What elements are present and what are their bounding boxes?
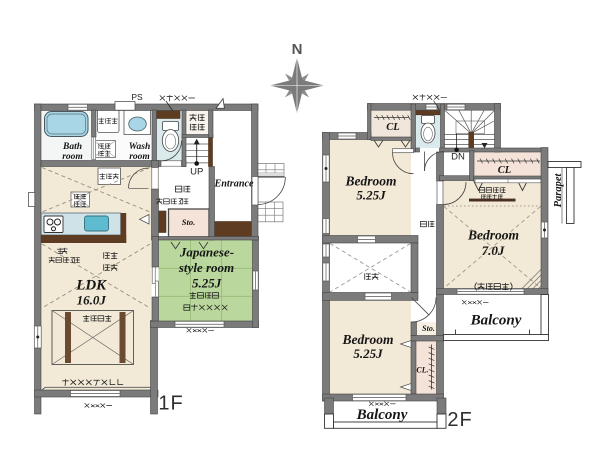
svg-text:style room: style room (178, 260, 234, 275)
svg-text:2F: 2F (447, 409, 472, 431)
svg-text:CL: CL (386, 122, 399, 133)
svg-text:Wash: Wash (129, 142, 150, 152)
svg-text:room: room (129, 152, 150, 162)
svg-text:Entrance: Entrance (213, 178, 254, 189)
svg-text:DN: DN (451, 152, 465, 163)
svg-text:Sto.: Sto. (182, 217, 195, 227)
svg-text:Bath: Bath (62, 142, 82, 152)
svg-text:5.25J: 5.25J (353, 346, 383, 361)
svg-text:CL: CL (498, 165, 511, 176)
svg-text:Parapet: Parapet (553, 173, 564, 208)
svg-text:1F: 1F (158, 392, 183, 414)
svg-text:CL.: CL. (416, 365, 428, 374)
svg-text:Bedroom: Bedroom (467, 227, 519, 242)
svg-text:16.0J: 16.0J (77, 292, 107, 307)
svg-text:LDK: LDK (75, 277, 107, 293)
svg-text:5.25J: 5.25J (356, 187, 386, 202)
svg-text:N: N (292, 41, 303, 58)
svg-text:Bedroom: Bedroom (344, 173, 396, 188)
svg-text:UP: UP (190, 166, 203, 177)
svg-text:Sto.: Sto. (422, 324, 435, 333)
svg-text:Balcony: Balcony (356, 407, 408, 423)
svg-text:room: room (62, 152, 83, 162)
svg-text:5.25J: 5.25J (192, 275, 222, 290)
svg-text:PS: PS (131, 92, 143, 102)
svg-text:7.0J: 7.0J (482, 243, 505, 258)
svg-text:Japanese-: Japanese- (179, 245, 234, 260)
svg-text:Balcony: Balcony (470, 312, 522, 328)
svg-text:Bedroom: Bedroom (341, 332, 393, 347)
